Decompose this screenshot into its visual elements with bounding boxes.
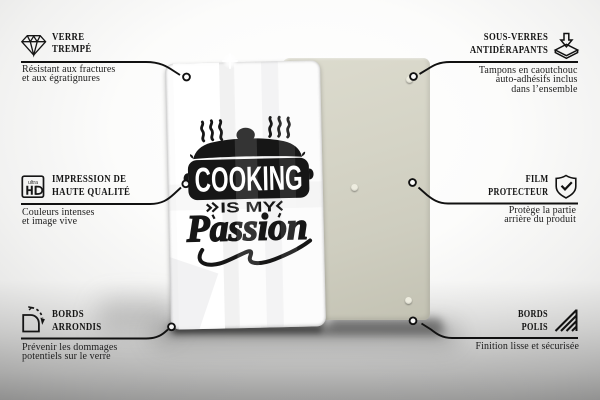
svg-text:ultra: ultra xyxy=(28,180,38,186)
